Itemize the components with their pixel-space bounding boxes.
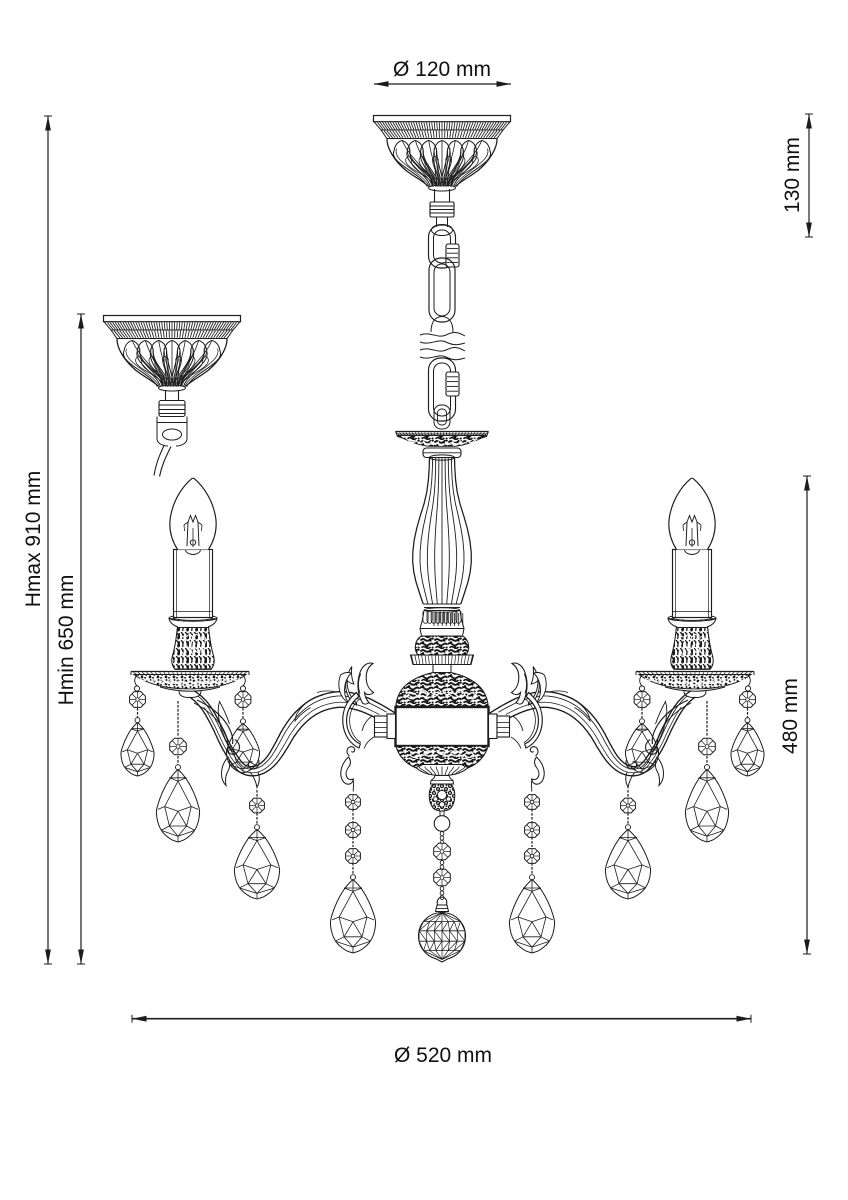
svg-text:Hmax 910 mm: Hmax 910 mm	[22, 471, 45, 608]
svg-text:Ø 120 mm: Ø 120 mm	[393, 58, 491, 81]
svg-text:Ø 520 mm: Ø 520 mm	[394, 1044, 492, 1067]
svg-text:Hmin 650 mm: Hmin 650 mm	[55, 575, 78, 706]
svg-text:480 mm: 480 mm	[779, 678, 802, 754]
svg-text:130 mm: 130 mm	[781, 137, 804, 213]
